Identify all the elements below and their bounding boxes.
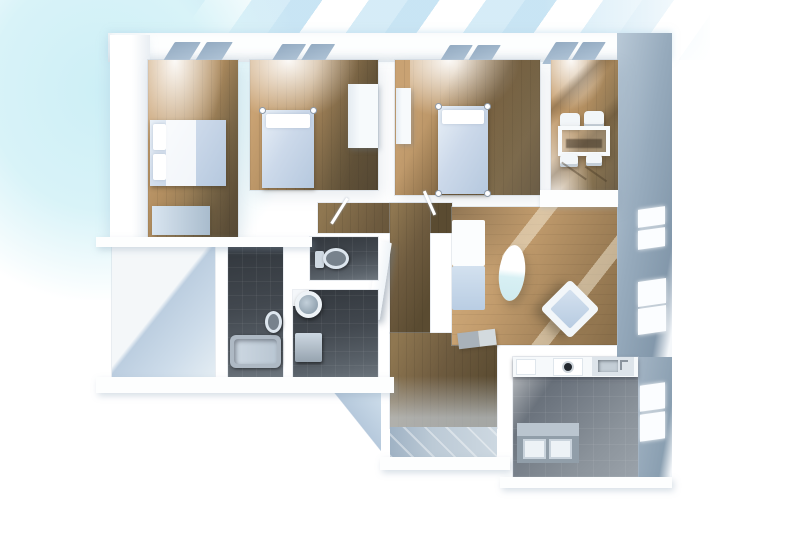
- toilet: [323, 248, 349, 269]
- room-entrance: [390, 427, 497, 457]
- double-bed: [150, 120, 226, 186]
- bathtub-basin: [234, 339, 277, 364]
- room-nook: [112, 247, 215, 377]
- room-bedroom3: [395, 60, 540, 195]
- bed-post: [260, 108, 265, 113]
- window-icon: [638, 305, 666, 335]
- bed-sheet: [166, 120, 196, 186]
- bed-post: [485, 104, 490, 109]
- wardrobe: [348, 84, 378, 148]
- dresser: [152, 206, 210, 235]
- single-bed: [262, 110, 314, 188]
- dining-chair: [586, 154, 602, 166]
- laptop-keyboard: [478, 329, 497, 347]
- room-bathroom1: [228, 247, 283, 380]
- room-dining: [551, 60, 618, 203]
- bathtub: [230, 335, 281, 368]
- chair-leg-shadow: [585, 166, 607, 183]
- wardrobe: [396, 88, 411, 144]
- room-living: [452, 207, 617, 345]
- room-kitchen: [513, 357, 638, 477]
- round-sink: [295, 291, 322, 318]
- dining-living-wall: [540, 190, 618, 207]
- floorplan-scene: [0, 0, 800, 533]
- dining-chair: [560, 154, 578, 167]
- kitchen-island-top: [517, 423, 579, 436]
- right-exterior-wall: [617, 33, 672, 357]
- bed-pillow: [153, 124, 166, 150]
- hallway-lower: [390, 333, 497, 428]
- kitchen-island: [517, 436, 579, 463]
- single-bed: [438, 106, 488, 194]
- washing-machine: [295, 333, 322, 362]
- bed-pillow: [153, 154, 166, 180]
- table-shadow: [566, 139, 602, 148]
- kitchen-sink: [592, 357, 634, 376]
- entrance-light-wash: [390, 376, 497, 428]
- bed-pillow: [266, 114, 310, 128]
- exterior-wall-bottom: [500, 477, 672, 488]
- laptop-screen: [457, 331, 480, 349]
- bed-post: [485, 191, 490, 196]
- bed-post: [311, 108, 316, 113]
- left-exterior-wall: [110, 35, 150, 237]
- room-bedroom2: [250, 60, 378, 190]
- sofa-back: [452, 220, 485, 266]
- exterior-wall-bottom: [380, 457, 510, 470]
- bed-post: [436, 191, 441, 196]
- window-icon: [638, 227, 665, 250]
- window-icon: [640, 411, 665, 442]
- faucet-icon: [620, 360, 628, 362]
- interior-wall: [96, 237, 312, 247]
- window-icon: [640, 382, 665, 412]
- armchair-cushion: [550, 289, 590, 329]
- dining-chair: [584, 111, 604, 127]
- hallway-vertical: [390, 203, 430, 333]
- oval-table: [496, 244, 528, 302]
- sofa-seat: [452, 266, 485, 310]
- island-door-panel: [523, 439, 546, 459]
- window-icon: [638, 278, 666, 307]
- room-wc: [310, 237, 378, 280]
- dining-table: [558, 126, 610, 156]
- top-exterior-wall: [108, 33, 672, 62]
- sink-basin: [598, 360, 618, 372]
- armchair: [540, 279, 599, 338]
- room-bedroom1: [148, 60, 238, 237]
- room-bathroom2: [293, 290, 378, 380]
- fridge: [516, 359, 536, 375]
- bed-pillow: [442, 110, 484, 124]
- interior-wall: [96, 377, 394, 393]
- kitchen-exterior-wall: [638, 357, 672, 480]
- washer-door-icon: [562, 361, 574, 373]
- island-door-panel: [549, 439, 572, 459]
- bidet: [265, 311, 282, 333]
- kitchen-counter: [513, 357, 638, 377]
- window-icon: [638, 206, 665, 228]
- bed-post: [436, 104, 441, 109]
